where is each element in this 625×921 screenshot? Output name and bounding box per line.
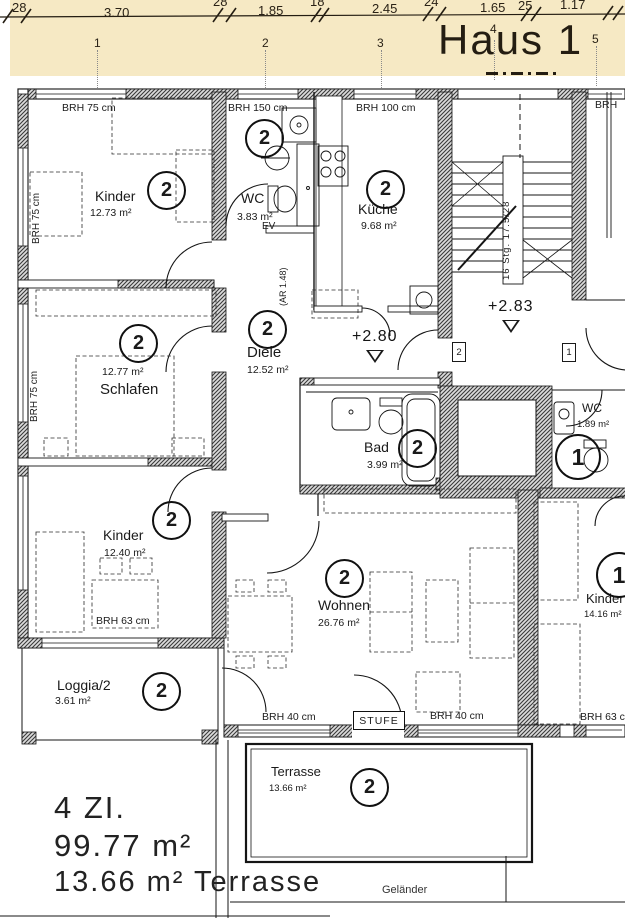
gelaender-label: Geländer bbox=[382, 884, 427, 896]
room-label-wc-e: WC bbox=[582, 401, 602, 415]
room-label-wc: WC bbox=[241, 190, 264, 206]
room-area-kueche: 9.68 m² bbox=[361, 220, 397, 232]
unit-number: 2 bbox=[156, 680, 167, 703]
level-marker-text: +2.80 bbox=[352, 328, 397, 346]
room-area-kinder-w: 12.40 m² bbox=[104, 547, 145, 559]
room-area-schlafen: 12.77 m² bbox=[102, 366, 143, 378]
room-area-wohnen: 26.76 m² bbox=[318, 617, 359, 629]
stairs bbox=[452, 94, 572, 284]
unit-badge: 2 bbox=[119, 324, 158, 363]
stufe-step-label: STUFE bbox=[353, 711, 405, 730]
unit-badge: 2 bbox=[325, 559, 364, 598]
room-area-diele: 12.52 m² bbox=[247, 364, 288, 376]
room-area-bad: 3.99 m² bbox=[367, 459, 403, 471]
unit-number: 2 bbox=[262, 318, 273, 341]
unit-badge: 1 bbox=[555, 434, 601, 480]
level-marker-text: +2.83 bbox=[488, 298, 533, 316]
brh-label: BRH 63 cm bbox=[96, 615, 150, 627]
unit-number: 2 bbox=[161, 179, 172, 202]
unit-number: 2 bbox=[364, 776, 375, 799]
unit-number: 2 bbox=[166, 509, 177, 532]
brh-label: BRH 63 cm bbox=[580, 711, 625, 723]
room-area-terrasse: 13.66 m² bbox=[269, 783, 307, 794]
level-marker-triangle bbox=[366, 350, 384, 363]
unit-badge: 2 bbox=[398, 429, 437, 468]
brh-label: BRH 150 cm bbox=[228, 102, 288, 114]
room-label-terrasse: Terrasse bbox=[271, 764, 321, 779]
room-label-schlafen: Schlafen bbox=[100, 381, 158, 398]
room-area-wc-e: 1.89 m² bbox=[577, 419, 609, 430]
unit-badge: 2 bbox=[147, 171, 186, 210]
brh-label: BRH 100 cm bbox=[356, 102, 416, 114]
fixtures bbox=[261, 108, 608, 486]
brh-label: BRH 40 cm bbox=[262, 711, 316, 723]
room-label-kinder-nw: Kinder bbox=[95, 188, 135, 204]
brh-label-vertical: BRH 75 cm bbox=[29, 348, 40, 422]
summary-rooms: 4 ZI. bbox=[54, 790, 126, 826]
unit-badge: 2 bbox=[142, 672, 181, 711]
brh-label-vertical: BRH 75 cm bbox=[31, 172, 42, 244]
door-plate-number: 2 bbox=[456, 347, 461, 358]
level-marker-triangle bbox=[502, 320, 520, 333]
ev-label: EV bbox=[262, 221, 275, 232]
room-label-bad: Bad bbox=[364, 439, 389, 455]
unit-number: 1 bbox=[572, 444, 585, 471]
ar-label: (AR 1.48) bbox=[278, 236, 288, 306]
stufe-text: STUFE bbox=[359, 715, 398, 727]
unit-number: 1 bbox=[613, 562, 625, 589]
unit-badge: 2 bbox=[152, 501, 191, 540]
unit-badge: 2 bbox=[350, 768, 389, 807]
unit-badge: 2 bbox=[248, 310, 287, 349]
unit-number: 2 bbox=[259, 127, 270, 150]
summary-terrace: 13.66 m² Terrasse bbox=[54, 866, 321, 899]
brh-label: BRH 40 cm bbox=[430, 710, 484, 722]
brh-label: BRH 75 cm bbox=[62, 102, 116, 114]
door-plate-2: 2 bbox=[452, 342, 466, 362]
floorplan-page: 28 3.70 28 1.85 18 2.45 24 1.65 25 1.17 … bbox=[0, 0, 625, 921]
unit-number: 2 bbox=[339, 567, 350, 590]
room-area-kinder-e: 14.16 m² bbox=[584, 609, 622, 620]
door-plate-1: 1 bbox=[562, 343, 576, 362]
loggia-outline bbox=[22, 648, 224, 744]
stair-count-label: 16 Stg. 17.5/28 bbox=[501, 166, 512, 280]
room-label-kinder-w: Kinder bbox=[103, 527, 143, 543]
unit-number: 2 bbox=[412, 437, 423, 460]
door-plate-number: 1 bbox=[566, 347, 571, 358]
plan-linework bbox=[0, 0, 625, 921]
room-area-loggia: 3.61 m² bbox=[55, 695, 91, 707]
room-label-loggia: Loggia/2 bbox=[57, 677, 111, 693]
unit-badge: 2 bbox=[366, 170, 405, 209]
brh-label-cut: BRH bbox=[595, 99, 617, 111]
room-label-wohnen: Wohnen bbox=[318, 597, 370, 613]
summary-area: 99.77 m² bbox=[54, 828, 192, 864]
unit-number: 2 bbox=[133, 332, 144, 355]
room-area-kinder-nw: 12.73 m² bbox=[90, 207, 131, 219]
unit-badge: 2 bbox=[245, 119, 284, 158]
unit-number: 2 bbox=[380, 178, 391, 201]
